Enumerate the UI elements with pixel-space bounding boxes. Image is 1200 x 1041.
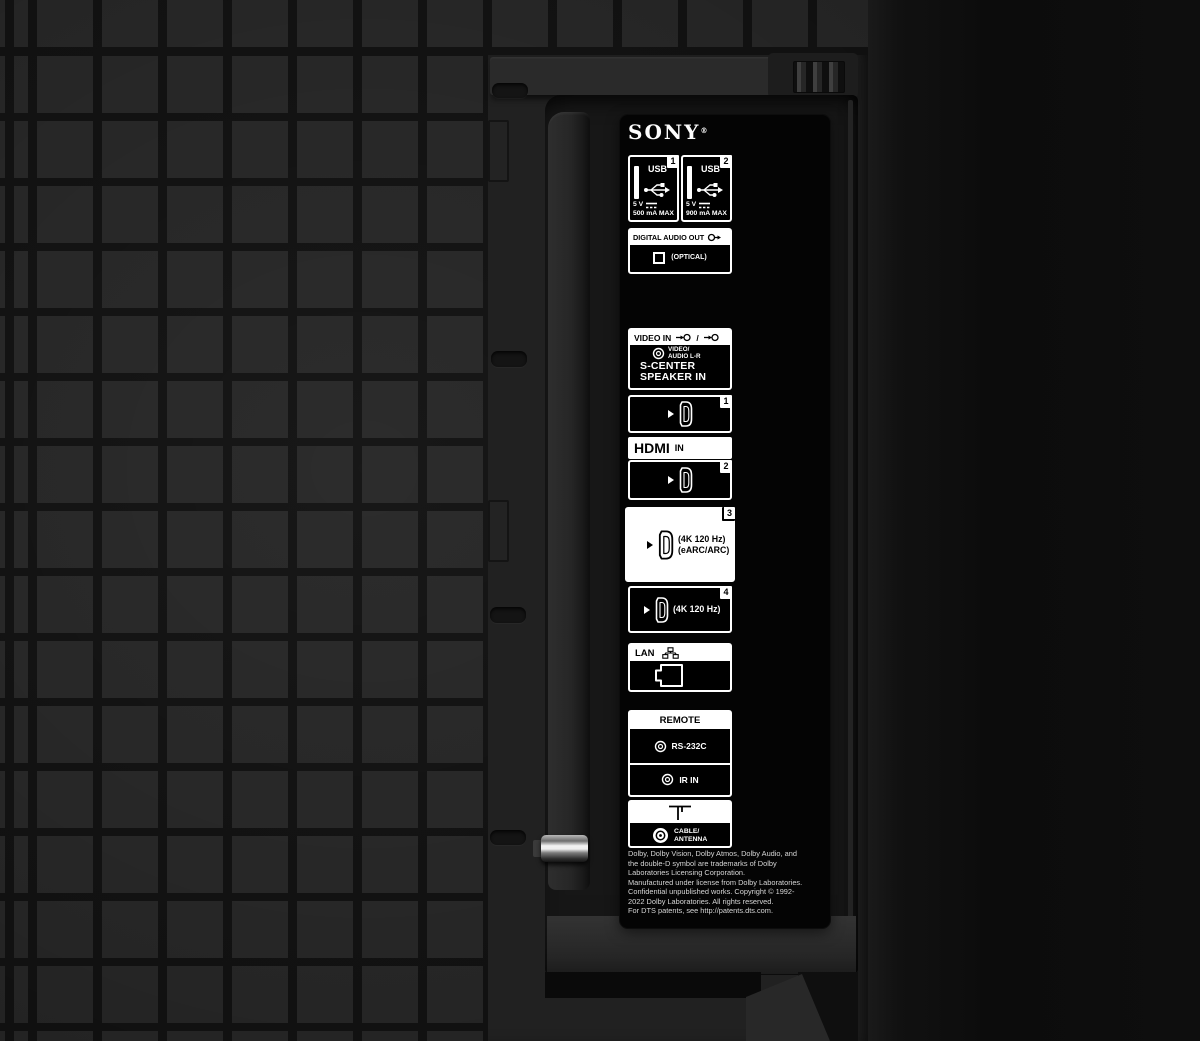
antenna-line: ANTENNA — [674, 836, 707, 844]
ir-in-port-row: IR IN — [630, 763, 730, 794]
legal-line: Confidential unpublished works. Copyrigh… — [628, 887, 824, 897]
usb-voltage: 5 V — [686, 201, 696, 210]
port-number-badge: 4 — [720, 586, 732, 599]
cover-latch — [793, 61, 845, 93]
lan-port-group: LAN — [628, 643, 732, 692]
lan-port-area — [630, 661, 730, 690]
dc-symbol-icon — [646, 202, 657, 209]
port-number-badge: 1 — [667, 155, 679, 168]
cover-clip-tab — [488, 120, 509, 182]
digital-audio-out-group: DIGITAL AUDIO OUT (OPTICAL) — [628, 228, 732, 274]
legal-line: For DTS patents, see http://patents.dts.… — [628, 906, 824, 916]
io-label-plate: SONY® 1 USB 5 V — [620, 115, 830, 928]
legal-line: Dolby, Dolby Vision, Dolby Atmos, Dolby … — [628, 849, 824, 859]
phono-jack-icon — [652, 347, 665, 360]
pointer-icon — [644, 606, 650, 614]
mounting-screw — [541, 835, 588, 862]
cover-clip-slot — [490, 607, 526, 623]
hdmi-port-3: 3 (4K 120 Hz) (eARC/ARC) — [625, 507, 735, 582]
hdmi-port-3-captions: (4K 120 Hz) (eARC/ARC) — [678, 534, 729, 555]
port-number-badge: 2 — [720, 155, 732, 168]
cable-antenna-label: CABLE/ ANTENNA — [674, 828, 707, 843]
caption-4k120: (4K 120 Hz) — [673, 604, 720, 615]
coax-connector-icon — [652, 827, 669, 844]
optical-label: (OPTICAL) — [671, 254, 706, 261]
video-in-header: VIDEO IN / — [630, 330, 730, 345]
caption-4k120: (4K 120 Hz) — [678, 534, 729, 545]
usb-port-1: 1 USB 5 V — [628, 155, 679, 222]
hdmi-connector-icon — [678, 466, 693, 494]
video-input-jack-icon — [676, 333, 691, 342]
lan-label: LAN — [635, 648, 655, 659]
cable-line: CABLE/ — [674, 828, 707, 836]
hdmi-port-2: 2 — [628, 460, 732, 500]
s-center-line2: SPEAKER IN — [640, 372, 730, 384]
pointer-icon — [647, 541, 653, 549]
audio-out-jack-icon — [707, 233, 721, 242]
video-audio-jack-label: VIDEO/ AUDIO L-R — [668, 347, 701, 361]
port-number-badge: 1 — [720, 395, 732, 408]
lan-header: LAN — [630, 645, 730, 661]
antenna-port-area: CABLE/ ANTENNA — [630, 823, 730, 848]
pointer-icon — [668, 476, 674, 484]
video-in-group: VIDEO IN / VIDEO/ AUDIO L-R S-CENTER SPE… — [628, 328, 732, 390]
network-icon — [662, 647, 679, 659]
hinge-bar — [548, 112, 590, 890]
usb-current: 500 mA MAX — [633, 210, 674, 219]
hdmi-port-4: 4 (4K 120 Hz) — [628, 586, 732, 633]
usb-power-spec: 5 V 900 mA MAX — [686, 201, 727, 218]
usb-slot-shape — [634, 166, 639, 199]
cover-clip-slot — [490, 830, 526, 845]
port-number-badge: 2 — [720, 460, 732, 473]
rs232c-label: RS-232C — [672, 741, 707, 751]
digital-audio-out-label: DIGITAL AUDIO OUT — [633, 233, 704, 242]
antenna-header — [630, 802, 730, 823]
s-center-label: S-CENTER SPEAKER IN — [640, 361, 730, 384]
tv-back-panel-photo: SONY® 1 USB 5 V — [0, 0, 1200, 1041]
dolby-dts-legal-text: Dolby, Dolby Vision, Dolby Atmos, Dolby … — [628, 849, 824, 916]
port-number-badge: 3 — [722, 507, 735, 521]
phono-jack-icon — [654, 740, 667, 753]
pointer-icon — [668, 410, 674, 418]
sony-logo: SONY® — [628, 120, 707, 144]
optical-port-area: (OPTICAL) — [630, 245, 730, 270]
tv-side-body — [868, 0, 1200, 1041]
remote-header: REMOTE — [630, 712, 730, 729]
caption-earc: (eARC/ARC) — [678, 545, 729, 556]
ethernet-port-icon — [654, 663, 684, 688]
hdmi-in-section-label: HDMI IN — [628, 437, 732, 459]
cover-clip-slot — [492, 83, 528, 98]
ir-in-label: IR IN — [679, 775, 698, 785]
rs232c-port-row: RS-232C — [630, 729, 730, 763]
hdmi-connector-icon — [654, 595, 669, 625]
usb-trident-icon — [696, 181, 724, 198]
hdmi-wordmark: HDMI — [634, 440, 670, 456]
usb-label: USB — [648, 164, 667, 174]
hdmi-connector-icon — [657, 528, 674, 562]
antenna-group: CABLE/ ANTENNA — [628, 800, 732, 848]
legal-line: the double-D symbol are trademarks of Do… — [628, 859, 824, 869]
bottom-shadow-band — [545, 972, 761, 998]
usb-slot-shape — [687, 166, 692, 199]
legal-line: 2022 Dolby Laboratories. All rights rese… — [628, 897, 824, 907]
cover-clip-tab — [488, 500, 509, 562]
video-in-body: VIDEO/ AUDIO L-R S-CENTER SPEAKER IN — [630, 345, 730, 384]
optical-port-shape — [653, 252, 665, 264]
hdmi-connector-icon — [678, 400, 693, 428]
hdmi-port-1: 1 — [628, 395, 732, 433]
recess-right-edge — [848, 100, 853, 960]
registered-mark: ® — [700, 126, 707, 135]
icon-separator: / — [696, 333, 698, 343]
latch-housing — [768, 53, 858, 98]
digital-audio-out-header: DIGITAL AUDIO OUT — [630, 230, 730, 245]
legal-line: Manufactured under license from Dolby La… — [628, 878, 824, 888]
phono-jack-icon — [661, 773, 674, 786]
usb-power-spec: 5 V 500 mA MAX — [633, 201, 674, 218]
hdmi-in-suffix: IN — [675, 443, 684, 453]
usb-port-2: 2 USB 5 V — [681, 155, 732, 222]
sony-wordmark: SONY — [628, 120, 700, 144]
usb-port-group: 1 USB 5 V — [628, 155, 732, 222]
antenna-icon — [667, 804, 693, 821]
usb-label: USB — [701, 164, 720, 174]
remote-label: REMOTE — [660, 715, 701, 726]
remote-group: REMOTE RS-232C IR IN — [628, 710, 732, 797]
usb-current: 900 mA MAX — [686, 210, 727, 219]
legal-line: Laboratories Licensing Corporation. — [628, 868, 824, 878]
cover-clip-slot — [491, 351, 527, 367]
usb-voltage: 5 V — [633, 201, 643, 210]
dc-symbol-icon — [699, 202, 710, 209]
audio-input-jack-icon — [704, 333, 719, 342]
video-in-label: VIDEO IN — [634, 333, 671, 343]
usb-trident-icon — [643, 181, 671, 198]
